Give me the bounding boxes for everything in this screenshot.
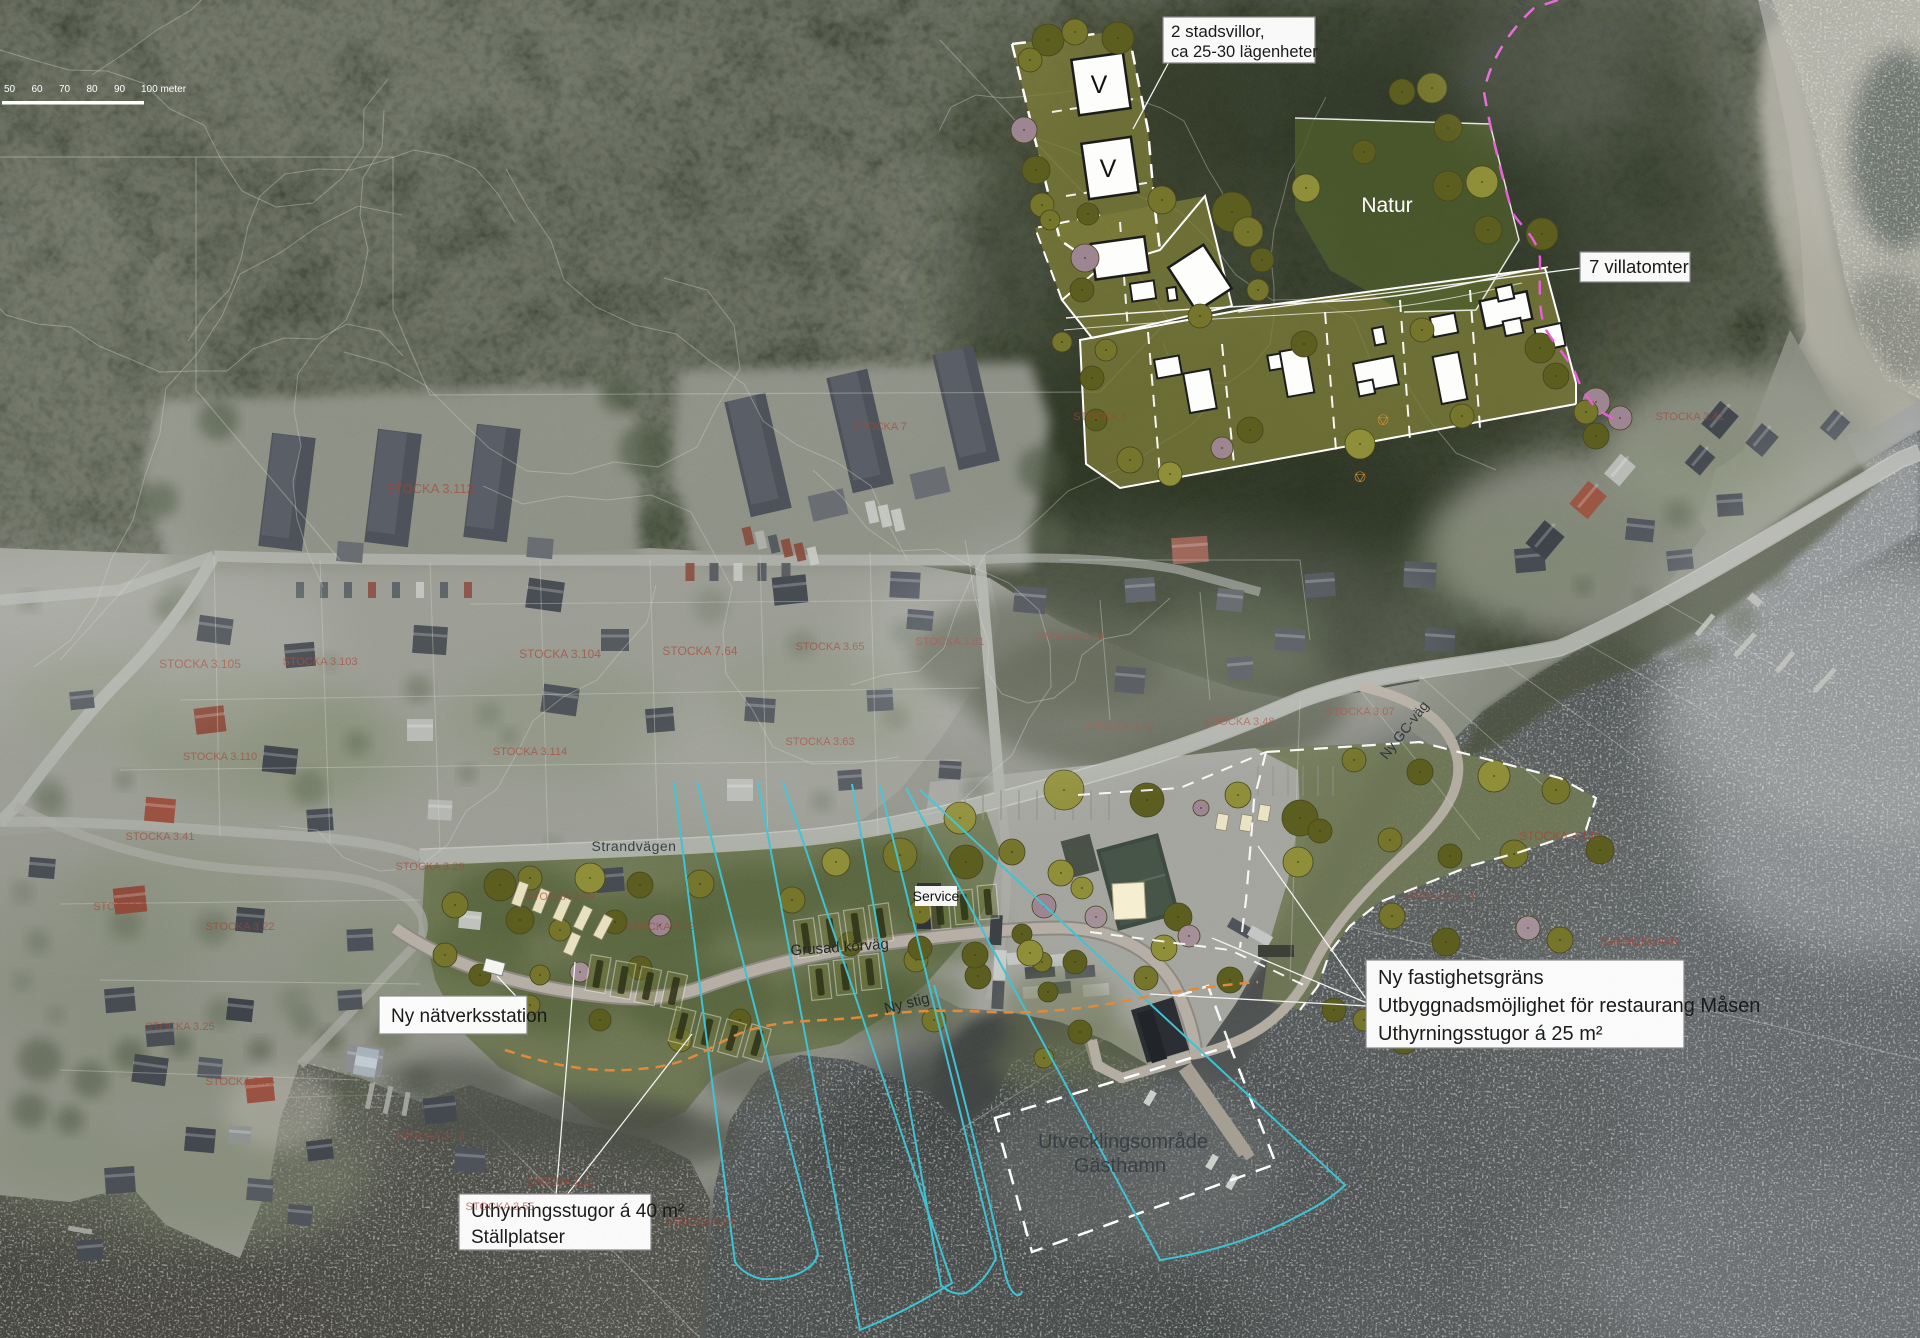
- svg-text:STOCKA 1.10: STOCKA 1.10: [526, 1176, 595, 1188]
- svg-text:2 stadsvillor,: 2 stadsvillor,: [1171, 22, 1265, 41]
- svg-text:Strandvägen: Strandvägen: [592, 838, 677, 854]
- svg-text:7 villatomter: 7 villatomter: [1589, 256, 1689, 277]
- svg-text:STOCKA 3.18: STOCKA 3.18: [396, 1131, 465, 1143]
- svg-text:Ställplatser: Ställplatser: [471, 1227, 566, 1248]
- svg-text:50: 50: [4, 84, 16, 95]
- svg-text:Ny nätverksstation: Ny nätverksstation: [391, 1006, 547, 1027]
- svg-text:STOCKA 3: STOCKA 3: [1073, 411, 1127, 423]
- svg-text:V: V: [1100, 155, 1117, 183]
- svg-text:⎊: ⎊: [1354, 469, 1367, 486]
- svg-text:Uthyrningsstugor á 25 m²: Uthyrningsstugor á 25 m²: [1378, 1023, 1603, 1045]
- svg-text:60: 60: [32, 84, 44, 95]
- svg-text:STOCKA 3.14: STOCKA 3.14: [1406, 891, 1475, 903]
- svg-text:STOCKA 3.41: STOCKA 3.41: [1656, 411, 1725, 423]
- svg-text:SAMMERHAVN: SAMMERHAVN: [1601, 936, 1679, 948]
- svg-text:STOCKA 3.22: STOCKA 3.22: [206, 921, 275, 933]
- svg-text:STOCKA 7: STOCKA 7: [853, 421, 907, 433]
- svg-text:STOCKA 3.41: STOCKA 3.41: [126, 831, 195, 843]
- svg-text:STOCKA 3.55: STOCKA 3.55: [466, 1201, 535, 1213]
- svg-text:STOCKA 3.94: STOCKA 3.94: [666, 1216, 735, 1228]
- svg-text:Service: Service: [913, 888, 960, 904]
- svg-text:STOCKA 3.114: STOCKA 3.114: [493, 746, 567, 758]
- svg-text:STOCKA 3.89: STOCKA 3.89: [526, 891, 595, 903]
- svg-text:STOCKA 3.110: STOCKA 3.110: [183, 751, 257, 763]
- svg-text:Utvecklingsområde: Utvecklingsområde: [1038, 1131, 1208, 1153]
- svg-text:ca 25-30 lägenheter: ca 25-30 lägenheter: [1171, 43, 1318, 61]
- svg-text:STOCKA 2: STOCKA 2: [93, 901, 147, 913]
- svg-text:Ny fastighetsgräns: Ny fastighetsgräns: [1378, 967, 1544, 989]
- svg-text:STOCKA 7.64: STOCKA 7.64: [662, 644, 737, 658]
- svg-text:70: 70: [59, 84, 71, 95]
- svg-text:STOCKA 3.22: STOCKA 3.22: [626, 921, 695, 933]
- svg-text:STOCKA 3.104: STOCKA 3.104: [519, 647, 601, 661]
- svg-text:STOCKA 3.25: STOCKA 3.25: [146, 1021, 215, 1033]
- svg-text:Utbyggnadsmöjlighet för restau: Utbyggnadsmöjlighet för restaurang Måsen: [1378, 995, 1760, 1017]
- svg-text:Gästhamn: Gästhamn: [1074, 1155, 1166, 1177]
- svg-text:80: 80: [87, 84, 99, 95]
- svg-text:STOCKA 3.132: STOCKA 3.132: [1519, 829, 1601, 843]
- svg-text:STOCKA 3.29: STOCKA 3.29: [396, 861, 465, 873]
- svg-text:STOCKA 3.112: STOCKA 3.112: [386, 481, 474, 496]
- svg-text:STOCKA 3.76: STOCKA 3.76: [206, 1076, 275, 1088]
- svg-text:⎊: ⎊: [1377, 412, 1390, 429]
- svg-text:V: V: [1091, 71, 1108, 99]
- svg-text:Natur: Natur: [1361, 194, 1412, 217]
